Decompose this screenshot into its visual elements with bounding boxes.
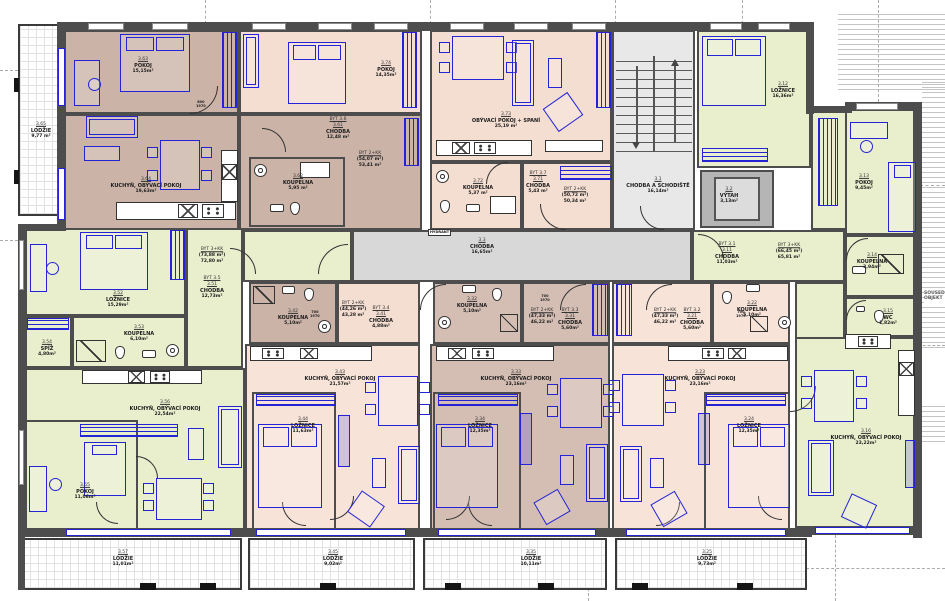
stove-3-33 bbox=[472, 348, 494, 359]
desk-3-52 bbox=[30, 244, 47, 292]
tv-board-3-16 bbox=[905, 440, 915, 488]
chair bbox=[609, 402, 620, 413]
floor-plan: SOUSEDNÍOBJEKT bbox=[0, 0, 945, 601]
apartment-size-byt-3-3: BYT 2+KK(47,33 m²)46,22 m² bbox=[529, 308, 556, 326]
chair bbox=[419, 382, 430, 393]
wall-jut bbox=[18, 224, 66, 231]
wardrobe-3-12 bbox=[702, 148, 768, 162]
chair-3-55 bbox=[49, 478, 62, 491]
corridor-3-3 bbox=[352, 230, 692, 282]
wardrobe-3-24 bbox=[706, 394, 786, 406]
window bbox=[318, 23, 352, 30]
window bbox=[252, 23, 286, 30]
french-window bbox=[58, 48, 65, 106]
kitchen-sink-3-73 bbox=[452, 142, 470, 154]
room-label-3-52: 3.52LOŽNICE15,29m² bbox=[106, 291, 130, 309]
chair bbox=[143, 483, 154, 494]
chair bbox=[856, 398, 867, 409]
door-size-tag: 7001970 bbox=[540, 294, 550, 302]
apartment-label-byt-3-3: BYT 3.33.31CHODBA5,60m² bbox=[558, 308, 582, 332]
stairs-arrow-down bbox=[632, 142, 640, 149]
washing-machine-3-53 bbox=[166, 344, 179, 357]
stairs-divider bbox=[653, 56, 655, 152]
kitchen-bar-3-73 bbox=[545, 140, 603, 152]
loggia-anchor bbox=[200, 583, 216, 590]
stove-3-43 bbox=[262, 348, 284, 359]
room-label-3-45: 3.45LODŽIE9,02m² bbox=[323, 550, 343, 568]
room-label-3-43: 3.43KUCHYŇ, OBÝVACÍ POKOJ21,57m² bbox=[305, 370, 376, 388]
room-label-3-64: 3.64KUCHYŇ, OBÝVACÍ POKOJ19,63m² bbox=[111, 177, 182, 195]
room-label-3-44: 3.44LOŽNICE11,63m² bbox=[291, 417, 315, 435]
chair bbox=[665, 402, 676, 413]
shower-3-42 bbox=[253, 286, 275, 304]
sink-3-15 bbox=[856, 306, 865, 312]
room-label-3-53: 3.53KOUPELNA6,10m² bbox=[124, 325, 154, 343]
apartment-size-byt-3-4: BYT 2+KK(44,26 m²)43,28 m² bbox=[340, 301, 367, 319]
sink-3-22 bbox=[746, 284, 760, 292]
chair bbox=[201, 147, 212, 158]
wardrobe-3-63 bbox=[222, 32, 237, 108]
room-label-3-13: 3.13POKOJ9,45m² bbox=[855, 174, 873, 192]
chair-3-13 bbox=[860, 140, 873, 153]
room-label-3-56: 3.56KUCHYŇ, OBÝVACÍ POKOJ22,54m² bbox=[130, 400, 201, 418]
stairs-arrow-up bbox=[671, 59, 679, 66]
window bbox=[514, 23, 548, 30]
kitchen-sink-3-23 bbox=[728, 348, 746, 359]
desk-3-55 bbox=[29, 466, 47, 512]
door-arc bbox=[420, 284, 446, 310]
bed-double-3-12 bbox=[702, 36, 766, 106]
window bbox=[88, 23, 124, 30]
apartment-size-byt-3-6: BYT 2+KK(54,07 m²)53,41 m² bbox=[357, 151, 384, 169]
wardrobe-3-61 bbox=[404, 118, 419, 166]
bed-double-3-34 bbox=[436, 424, 498, 508]
stove-3-56 bbox=[150, 371, 170, 383]
tv-board-3-23 bbox=[698, 413, 710, 465]
dining-table-3-23 bbox=[622, 374, 664, 426]
room-label-3-62: 3.62KOUPELNA5,95 m² bbox=[283, 174, 313, 192]
window bbox=[19, 430, 24, 485]
wardrobe-3-52 bbox=[170, 230, 185, 280]
loggia-anchor bbox=[445, 583, 461, 590]
room-label-3-2: 3.2VÝTAH3,13m² bbox=[720, 187, 739, 205]
room-label-3-3: 3.3CHODBA16,65m² bbox=[470, 238, 494, 256]
apartment-label-byt-3-2: BYT 3.23.21CHODBA5,60m² bbox=[680, 308, 704, 332]
apartment-size-byt-3-7: BYT 2+KK(50,72 m²)50,34 m² bbox=[562, 187, 589, 205]
room-label-3-22: 3.22KOUPELNA5,10m² bbox=[737, 301, 767, 319]
door-size-tag: 7001970 bbox=[310, 310, 320, 318]
wall-wing-right bbox=[806, 22, 814, 114]
dining-table-3-56 bbox=[156, 478, 202, 520]
stove-3-23 bbox=[702, 348, 724, 359]
room-label-3-34: 3.34LOŽNICE12,35m² bbox=[468, 417, 492, 435]
wardrobe-3-73 bbox=[596, 32, 611, 108]
coffee-table-3-56 bbox=[188, 428, 204, 460]
apartment-label-byt-3-6: BYT 3.63.61CHODBA12,48 m² bbox=[326, 117, 350, 141]
sink-3-42 bbox=[282, 286, 295, 294]
sink-3-32 bbox=[462, 285, 476, 293]
tv-board-3-43 bbox=[338, 415, 350, 467]
window bbox=[856, 103, 898, 110]
door-size-tag: 8001970 bbox=[196, 100, 206, 108]
french-window bbox=[626, 529, 786, 536]
axis-line bbox=[742, 0, 743, 24]
axis-line bbox=[615, 0, 616, 24]
window bbox=[710, 23, 742, 30]
room-label-3-12: 3.12LOŽNICE16,36m² bbox=[771, 82, 795, 100]
room-label-3-33: 3.33KUCHYŇ, OBÝVACÍ POKOJ23,16m² bbox=[481, 370, 552, 388]
stove-3-73 bbox=[474, 142, 496, 154]
room-label-3-63: 3.63POKOJ15,15m² bbox=[133, 57, 154, 75]
sofa-3-16 bbox=[808, 440, 834, 496]
kitchen-sink-3-16 bbox=[899, 362, 914, 376]
loggia-anchor bbox=[320, 583, 336, 590]
shelf-3-54 bbox=[27, 318, 69, 330]
chair bbox=[419, 404, 430, 415]
room-label-3-72: 3.72KOUPELNA5,37 m² bbox=[463, 179, 493, 197]
room-label-3-74: 3.74POKOJ14,35m² bbox=[376, 61, 397, 79]
french-window bbox=[438, 529, 596, 536]
sofa-3-64 bbox=[86, 116, 138, 138]
wardrobe-3-44 bbox=[256, 394, 336, 406]
tv-board-3-33 bbox=[520, 413, 532, 465]
room-label-3-14: 3.14KOUPELNA3,94m² bbox=[857, 253, 887, 271]
stove-3-64 bbox=[202, 204, 224, 218]
french-window bbox=[815, 527, 910, 534]
window bbox=[19, 240, 24, 290]
bed-single-3-13 bbox=[888, 162, 916, 232]
sink-3-62 bbox=[270, 204, 284, 212]
bed-double-3-52 bbox=[80, 232, 148, 290]
hydrant-label: HYDRANT bbox=[428, 229, 451, 236]
chair bbox=[801, 398, 812, 409]
coffee-table-3-64 bbox=[84, 146, 120, 161]
wardrobe-3-71 bbox=[560, 166, 612, 180]
loggia-anchor bbox=[632, 583, 648, 590]
room-label-3-55: 3.55POKOJ11,06m² bbox=[75, 483, 96, 501]
stove-3-16 bbox=[858, 336, 878, 347]
loggia-anchor bbox=[538, 583, 554, 590]
room-label-3-42: 3.42KOUPELNA5,10m² bbox=[278, 309, 308, 327]
chair bbox=[439, 42, 450, 53]
room-label-3-1: 3.1CHODBA A SCHODIŠTĚ16,14m² bbox=[626, 177, 689, 195]
desk-3-13 bbox=[850, 122, 888, 139]
wardrobe-3-31 bbox=[592, 284, 608, 336]
sofa-3-33 bbox=[586, 444, 608, 502]
axis-line bbox=[0, 70, 18, 71]
chair bbox=[203, 500, 214, 511]
axis-line bbox=[806, 568, 945, 569]
dining-table-3-16 bbox=[814, 370, 854, 422]
room-label-3-73: 3.73OBÝVACÍ POKOJ + SPANÍ25,19 m² bbox=[472, 112, 540, 130]
apartment-size-byt-3-2: BYT 2+KK(47,33 m²)46,22 m² bbox=[652, 308, 679, 326]
sink-3-53 bbox=[142, 350, 156, 358]
axis-line bbox=[430, 0, 431, 24]
french-window bbox=[66, 529, 231, 536]
neighbor-hatch-right bbox=[922, 78, 945, 348]
bathtub-3-72 bbox=[490, 196, 516, 214]
bed-double-3-24 bbox=[728, 424, 790, 508]
chair bbox=[143, 500, 154, 511]
coffee-table-3-23 bbox=[650, 458, 664, 488]
room-label-3-57: 3.57LODŽIE11,01m² bbox=[113, 550, 134, 568]
neighbor-object-label: SOUSEDNÍOBJEKT bbox=[924, 290, 945, 303]
washing-machine-3-42 bbox=[318, 320, 331, 333]
chair bbox=[365, 404, 376, 415]
window bbox=[450, 23, 484, 30]
room-label-3-24: 3.24LOŽNICE12,35m² bbox=[737, 417, 761, 435]
french-window bbox=[58, 168, 65, 220]
axis-line bbox=[920, 185, 945, 186]
kitchen-sink-3-64 bbox=[178, 204, 198, 218]
axis-line bbox=[878, 0, 879, 102]
bed-double-3-44 bbox=[258, 424, 322, 508]
washing-machine-3-72 bbox=[436, 170, 449, 183]
wardrobe-3-74 bbox=[402, 32, 417, 108]
side-table-3-73 bbox=[548, 58, 562, 88]
window bbox=[152, 23, 188, 30]
coffee-table-3-33 bbox=[560, 455, 574, 485]
window bbox=[374, 23, 408, 30]
shower-3-32 bbox=[500, 314, 518, 332]
washing-machine-3-62 bbox=[254, 164, 267, 177]
room-label-3-23: 3.23KUCHYŇ, OBÝVACÍ POKOJ23,16m² bbox=[665, 370, 736, 388]
sofa-3-43 bbox=[398, 446, 420, 504]
wardrobe-3-55 bbox=[80, 424, 178, 437]
washing-machine-3-32 bbox=[438, 316, 451, 329]
chair-3-52 bbox=[46, 262, 59, 275]
chair bbox=[801, 376, 812, 387]
chair bbox=[203, 483, 214, 494]
bed-double-3-74 bbox=[288, 42, 346, 104]
fridge-3-64 bbox=[222, 164, 237, 180]
apartment-label-byt-3-5: BYT 3.53.51CHODBA12,73m² bbox=[200, 276, 224, 300]
apartment-label-byt-3-4: BYT 3.43.41CHODBA4,88m² bbox=[369, 306, 393, 330]
kitchen-sink-3-56 bbox=[128, 371, 145, 383]
dining-table-3-33 bbox=[560, 378, 602, 428]
kitchen-sink-3-43 bbox=[300, 348, 318, 359]
washing-machine-3-22 bbox=[778, 316, 791, 329]
chair bbox=[147, 147, 158, 158]
chair bbox=[201, 170, 212, 181]
room-label-3-25: 3.25LODŽIE9,73m² bbox=[697, 550, 717, 568]
coffee-table-3-43 bbox=[372, 458, 386, 488]
hall-entry-3-16 bbox=[795, 282, 845, 340]
loggia-anchor bbox=[14, 170, 19, 184]
kitchen-sink-3-33 bbox=[448, 348, 466, 359]
room-label-3-15: 3.15WC1,82m² bbox=[879, 309, 897, 327]
apartment-label-byt-3-1: BYT 3.13.11CHODBA11,03m² bbox=[715, 242, 739, 266]
sofa-3-23 bbox=[620, 446, 642, 502]
loggia-anchor bbox=[737, 583, 753, 590]
apartment-size-byt-3-5: BYT 3+KK(73,88 m²)72,80 m² bbox=[199, 247, 226, 265]
stairs-arrow-line bbox=[674, 66, 676, 142]
room-label-3-16: 3.16KUCHYŇ, OBÝVACÍ POKOJ23,22m² bbox=[831, 429, 902, 447]
apartment-size-byt-3-1: BYT 3+KK(66,45 m²)65,81 m² bbox=[776, 243, 803, 261]
sofa-3-73 bbox=[512, 40, 534, 106]
wardrobe-3-21 bbox=[616, 284, 632, 336]
chair bbox=[439, 62, 450, 73]
sink-3-72 bbox=[466, 204, 480, 212]
chair bbox=[609, 380, 620, 391]
wardrobe-3-34 bbox=[438, 394, 518, 406]
bed-double-3-63 bbox=[120, 34, 190, 92]
room-label-3-65: 3.65LODŽIE9,77 m² bbox=[31, 122, 51, 140]
axis-line bbox=[205, 0, 206, 24]
loggia-anchor bbox=[140, 583, 156, 590]
loggia-anchor bbox=[14, 78, 19, 92]
window bbox=[758, 23, 790, 30]
axis-line bbox=[0, 240, 18, 241]
sofa-3-74 bbox=[243, 34, 259, 88]
kitchen-column-3-16 bbox=[898, 350, 915, 416]
chair bbox=[856, 376, 867, 387]
apartment-label-byt-3-7: BYT 3.73.71CHODBA5,43 m² bbox=[526, 171, 550, 195]
french-window bbox=[256, 529, 406, 536]
sofa-3-56 bbox=[218, 406, 242, 468]
chair bbox=[547, 406, 558, 417]
window bbox=[572, 23, 606, 30]
shower-3-53 bbox=[76, 340, 106, 362]
room-label-3-32: 3.32KOUPELNA5,10m² bbox=[457, 297, 487, 315]
dining-table-3-73 bbox=[452, 36, 504, 80]
room-label-3-54: 3.54SPÍŽ4,80m² bbox=[38, 340, 56, 358]
wardrobe-3-11 bbox=[818, 118, 838, 206]
room-label-3-35: 3.35LODŽIE10,11m² bbox=[521, 550, 542, 568]
stairs-arrow-line bbox=[636, 66, 638, 142]
dining-table-3-43 bbox=[378, 376, 418, 426]
